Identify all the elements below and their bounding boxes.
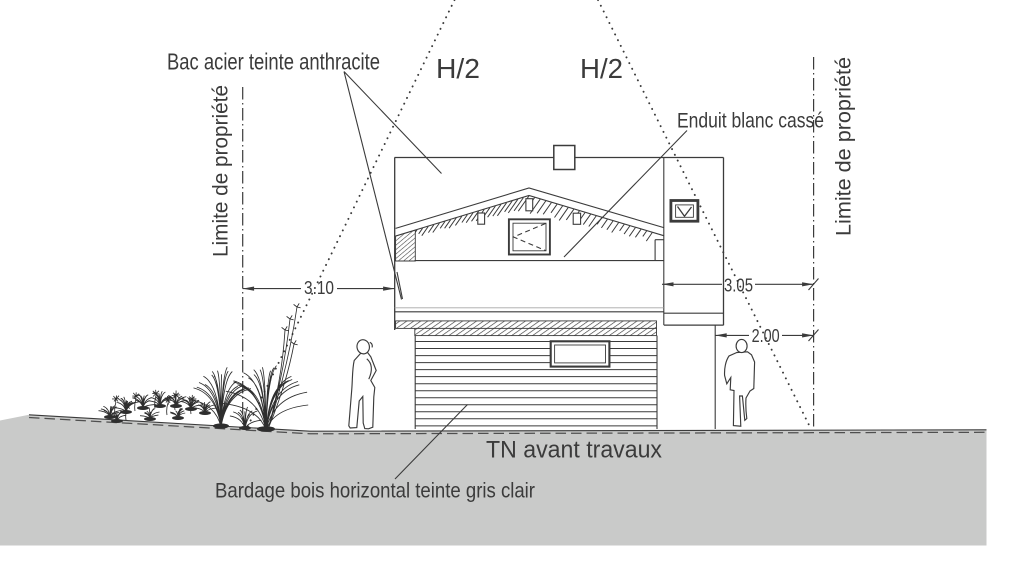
svg-text:TN avant travaux: TN avant travaux	[486, 437, 662, 464]
svg-text:2.00: 2.00	[752, 326, 780, 346]
svg-text:Limite de propriété: Limite de propriété	[833, 57, 856, 236]
svg-text:Bac acier teinte anthracite: Bac acier teinte anthracite	[167, 49, 380, 75]
svg-text:H/2: H/2	[580, 53, 623, 84]
svg-text:Enduit blanc cassé: Enduit blanc cassé	[677, 109, 824, 133]
svg-text:3.05: 3.05	[724, 276, 753, 296]
svg-text:Bardage bois horizontal teinte: Bardage bois horizontal teinte gris clai…	[215, 479, 535, 503]
svg-text:Limite de propriété: Limite de propriété	[210, 85, 233, 257]
svg-text:H/2: H/2	[436, 53, 480, 84]
svg-text:3.10: 3.10	[304, 278, 334, 298]
